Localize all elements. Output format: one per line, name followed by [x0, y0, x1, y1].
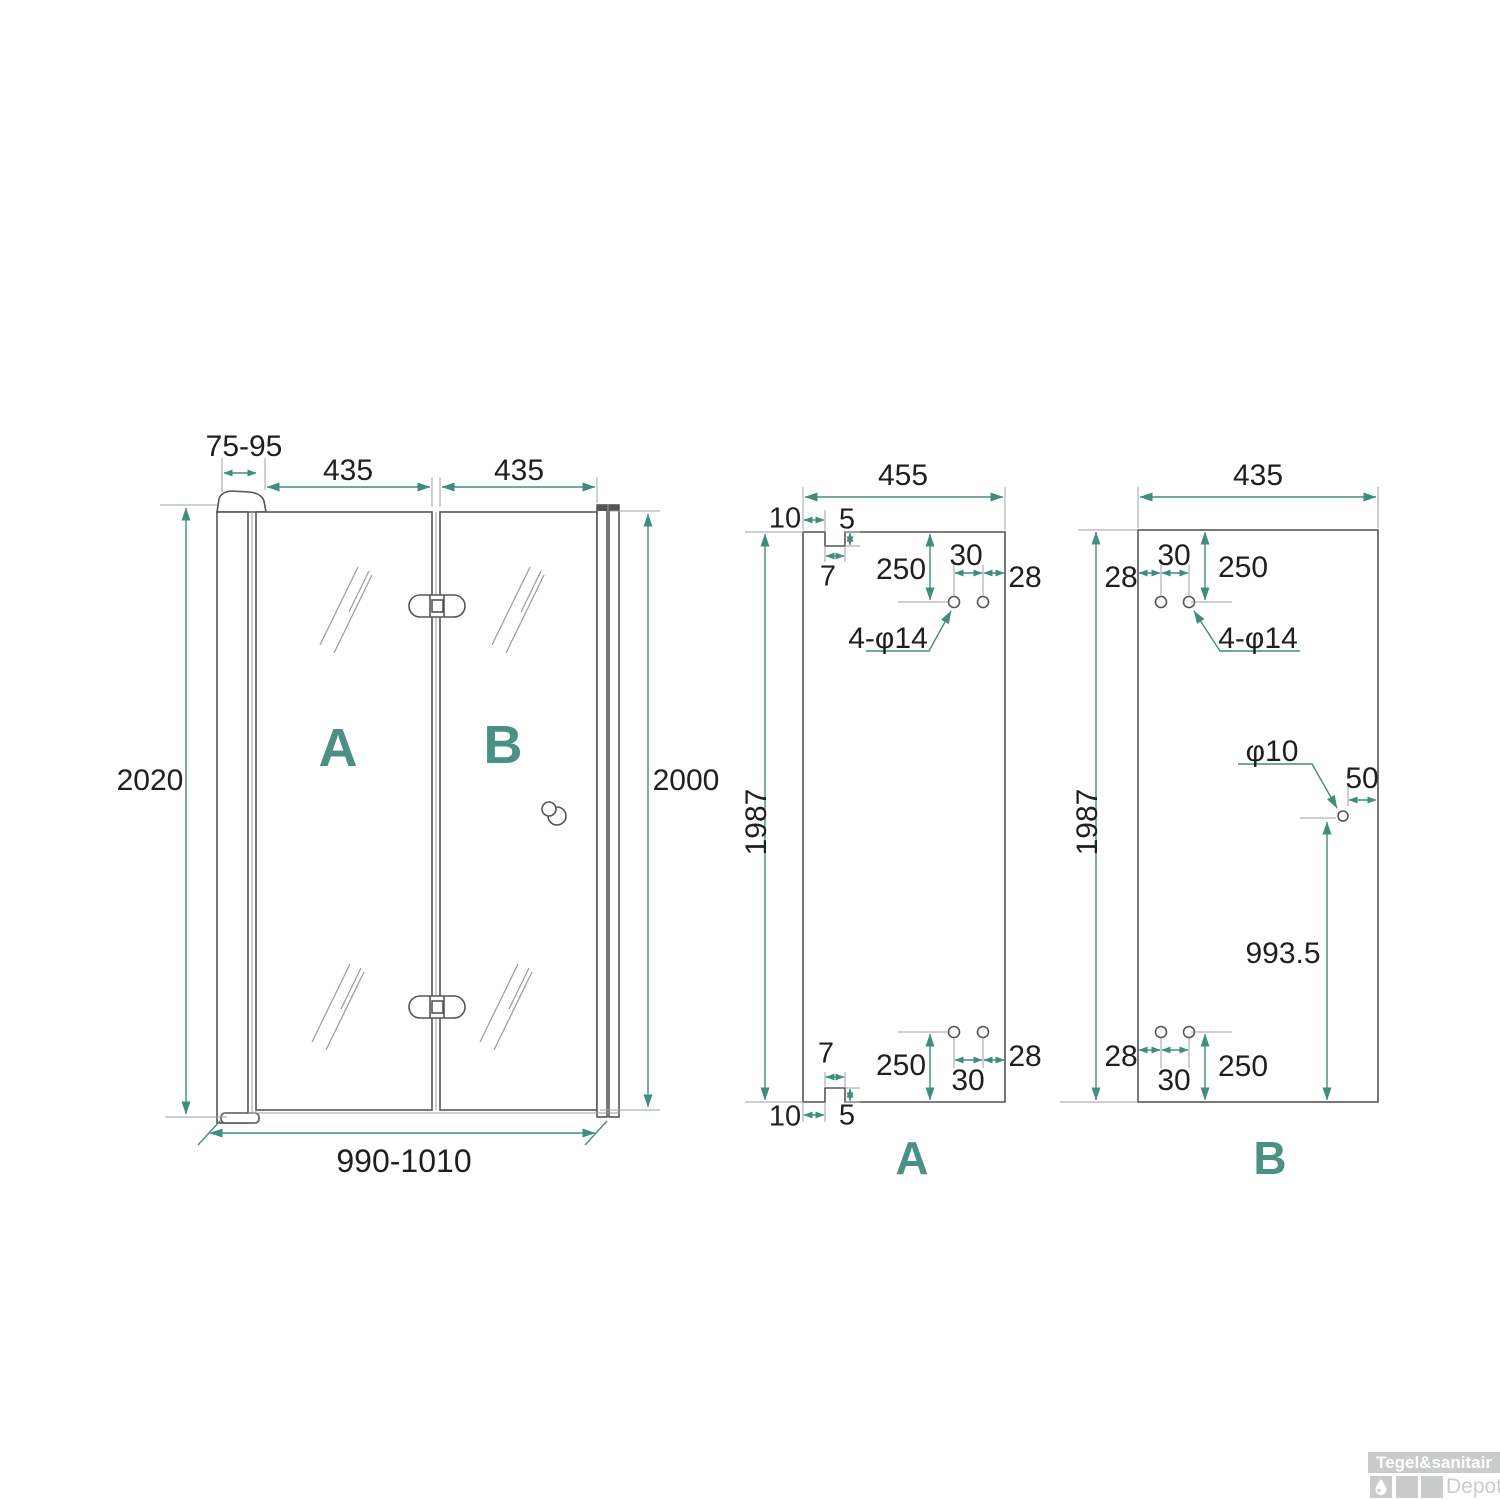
dim-b-handle-diameter: φ10: [1246, 737, 1299, 767]
right-frame-strip: [597, 505, 607, 1117]
dim-door-b-width: 435: [494, 456, 544, 486]
hinge-hole: [978, 597, 989, 608]
dim-a-top-holes-distance: 250: [876, 555, 926, 585]
hinge-hole: [949, 597, 960, 608]
dim-total-height-right: 2000: [653, 766, 720, 796]
handle-hole: [1338, 811, 1348, 821]
dim-a-bottom-holes-edge: 28: [1008, 1042, 1041, 1072]
watermark-square: [1396, 1476, 1418, 1498]
dim-b-top-holes-distance: 250: [1218, 553, 1268, 583]
dim-a-bottom-notch-depth: 5: [839, 1102, 855, 1131]
watermark-brand-text: Tegel&sanitair: [1376, 1454, 1492, 1471]
assembly-view: [160, 458, 660, 1145]
assembly-panel-a-letter: A: [319, 721, 358, 775]
dim-b-handle-bottom-distance: 993.5: [1245, 939, 1320, 969]
panel-a-outline: [803, 532, 1005, 1102]
dim-a-top-holes-spacing: 30: [949, 541, 982, 571]
wall-profile-foot: [221, 1113, 259, 1123]
dim-b-top-holes-edge: 28: [1104, 563, 1137, 593]
hinge-hole: [1156, 597, 1167, 608]
dim-b-bottom-holes-distance: 250: [1218, 1052, 1268, 1082]
watermark-suffix-text: Depot: [1446, 1476, 1500, 1497]
dim-b-handle-edge-distance: 50: [1345, 764, 1378, 794]
glass-panel-a: [256, 512, 432, 1110]
dim-b-bottom-holes-edge: 28: [1104, 1042, 1137, 1072]
dim-a-glass-height: 1987: [742, 789, 772, 856]
dim-a-top-notch-depth: 5: [839, 506, 855, 535]
water-drop-icon: [1370, 1476, 1392, 1498]
dim-a-top-notch-width: 7: [820, 563, 836, 592]
dim-a-holes-spec: 4-φ14: [848, 624, 928, 654]
panel-b-letter: B: [1253, 1135, 1286, 1181]
dim-a-bottom-notch-width: 7: [818, 1040, 834, 1069]
dim-b-top-holes-spacing: 30: [1157, 541, 1190, 571]
dim-b-bottom-holes-spacing: 30: [1157, 1066, 1190, 1096]
wall-profile-cap: [217, 491, 266, 512]
dim-a-bottom-holes-distance: 250: [876, 1051, 926, 1081]
panel-a-letter: A: [895, 1135, 928, 1181]
watermark-logo-square: [1370, 1476, 1392, 1498]
assembly-panel-b-letter: B: [484, 718, 523, 772]
hinge-hole: [949, 1027, 960, 1038]
wall-profile-bar: [217, 512, 248, 1123]
dim-door-a-width: 435: [323, 456, 373, 486]
dim-b-holes-spec: 4-φ14: [1218, 624, 1298, 654]
dim-a-top-holes-edge: 28: [1008, 563, 1041, 593]
watermark-square: [1421, 1476, 1443, 1498]
right-frame-strip: [609, 505, 619, 1117]
dim-a-width: 455: [878, 461, 928, 491]
dim-total-width-range: 990-1010: [336, 1145, 471, 1177]
hinge-hole: [978, 1027, 989, 1038]
dim-b-glass-height: 1987: [1073, 789, 1103, 856]
hinge-hole: [1156, 1027, 1167, 1038]
dim-a-top-notch-offset: 10: [769, 505, 801, 534]
dim-a-bottom-notch-offset: 10: [769, 1103, 801, 1132]
watermark-brand-band: Tegel&sanitair: [1368, 1452, 1500, 1473]
dim-wall-profile-range: 75-95: [206, 432, 283, 462]
hinge-top: [409, 595, 465, 617]
dim-a-bottom-holes-spacing: 30: [951, 1066, 984, 1096]
dim-b-width: 435: [1233, 461, 1283, 491]
technical-drawing: 75-95 435 435 2020 2000 990-1010 A B 455…: [0, 0, 1500, 1500]
dim-total-height-left: 2020: [117, 766, 184, 796]
hinge-bottom: [409, 996, 465, 1018]
